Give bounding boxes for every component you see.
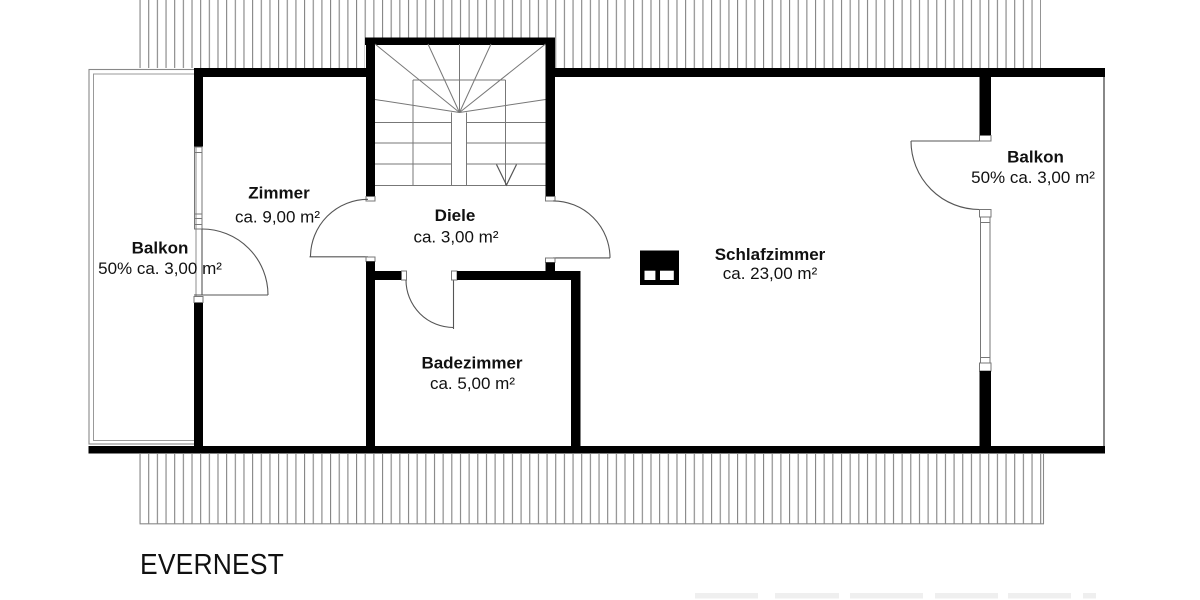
svg-text:50% ca. 3,00 m²: 50% ca. 3,00 m² bbox=[98, 259, 222, 278]
svg-text:Zimmer: Zimmer bbox=[248, 184, 310, 203]
svg-text:ca. 5,00 m²: ca. 5,00 m² bbox=[430, 374, 515, 393]
svg-text:Balkon: Balkon bbox=[1007, 148, 1064, 167]
svg-text:ca. 3,00 m²: ca. 3,00 m² bbox=[413, 228, 498, 247]
svg-text:ca. 9,00 m²: ca. 9,00 m² bbox=[235, 208, 320, 227]
svg-text:Schlafzimmer: Schlafzimmer bbox=[715, 245, 826, 264]
svg-text:EVERNEST: EVERNEST bbox=[140, 549, 284, 581]
svg-text:ca. 23,00 m²: ca. 23,00 m² bbox=[723, 264, 818, 283]
svg-text:50% ca. 3,00 m²: 50% ca. 3,00 m² bbox=[971, 168, 1095, 187]
svg-text:Badezimmer: Badezimmer bbox=[421, 354, 522, 373]
svg-text:Balkon: Balkon bbox=[132, 239, 189, 258]
svg-text:Diele: Diele bbox=[435, 206, 476, 225]
